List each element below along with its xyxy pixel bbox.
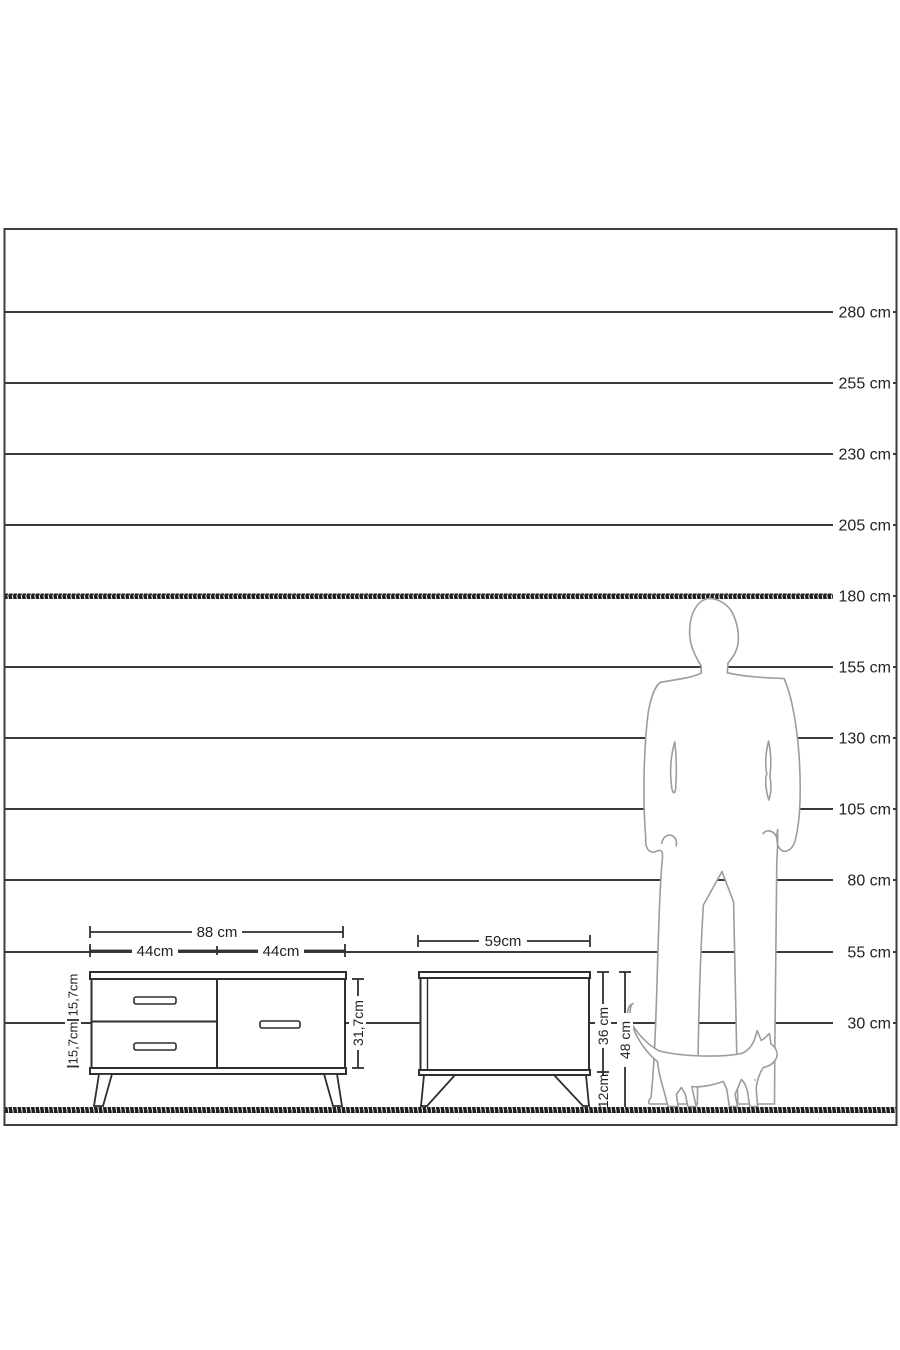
scale-label-130: 130 cm	[839, 731, 891, 748]
tv-stand-bottom-panel	[90, 1068, 346, 1074]
scale-label-55: 55 cm	[847, 945, 891, 962]
nightstand-bottom-panel	[419, 1070, 590, 1075]
man-silhouette	[644, 599, 800, 1105]
man-right-sleeve-detail	[766, 741, 771, 800]
scale-label-230: 230 cm	[839, 447, 891, 464]
tv-stand-total-width-label: 88 cm	[197, 924, 238, 941]
scale-label-180: 180 cm	[839, 589, 891, 606]
diagram-canvas: 88 cm 44cm 44cm 15,7cm 15,7cm 31,7cm 59c…	[0, 0, 900, 1350]
tv-stand-right-leg	[324, 1074, 342, 1106]
nightstand-right-leg	[554, 1075, 590, 1106]
nightstand-leg-height-label: 12cm	[595, 1074, 611, 1108]
tv-stand-body	[92, 979, 346, 1068]
scale-label-155: 155 cm	[839, 660, 891, 677]
cat-face-dot	[754, 1079, 756, 1081]
nightstand-left-leg	[420, 1075, 455, 1106]
tv-stand-body-height-label: 31,7cm	[350, 1000, 366, 1046]
scale-label-205: 205 cm	[839, 518, 891, 535]
tv-stand-left-leg	[94, 1074, 112, 1106]
tv-stand-bottom-drawer-height-label: 15,7cm	[66, 1022, 81, 1065]
nightstand-width-label: 59cm	[485, 933, 522, 950]
tv-stand-top-panel	[90, 972, 346, 979]
man-outline	[644, 599, 800, 1105]
nightstand-body	[421, 978, 590, 1070]
tv-stand-top-drawer-height-label: 15,7cm	[66, 974, 81, 1017]
scale-label-80: 80 cm	[847, 873, 891, 890]
nightstand-total-height-label: 48 cm	[617, 1021, 633, 1059]
tv-stand-right-width-label: 44cm	[263, 943, 300, 960]
tv-stand-top-drawer-handle	[134, 997, 176, 1004]
tv-stand-door-handle	[260, 1021, 300, 1028]
height-scale-labels: 280 cm 255 cm 230 cm 205 cm 180 cm 155 c…	[839, 305, 891, 1033]
tv-stand-bottom-drawer-handle	[134, 1043, 176, 1050]
nightstand	[419, 972, 590, 1106]
dimension-diagram: 88 cm 44cm 44cm 15,7cm 15,7cm 31,7cm 59c…	[0, 0, 900, 1350]
tv-stand	[90, 972, 346, 1106]
scale-label-30: 30 cm	[847, 1016, 891, 1033]
tv-stand-left-width-label: 44cm	[137, 943, 174, 960]
scale-label-255: 255 cm	[839, 376, 891, 393]
ground-line	[5, 1107, 896, 1113]
nightstand-body-height-label: 36 cm	[595, 1007, 611, 1045]
scale-label-105: 105 cm	[839, 802, 891, 819]
scale-label-280: 280 cm	[839, 305, 891, 322]
